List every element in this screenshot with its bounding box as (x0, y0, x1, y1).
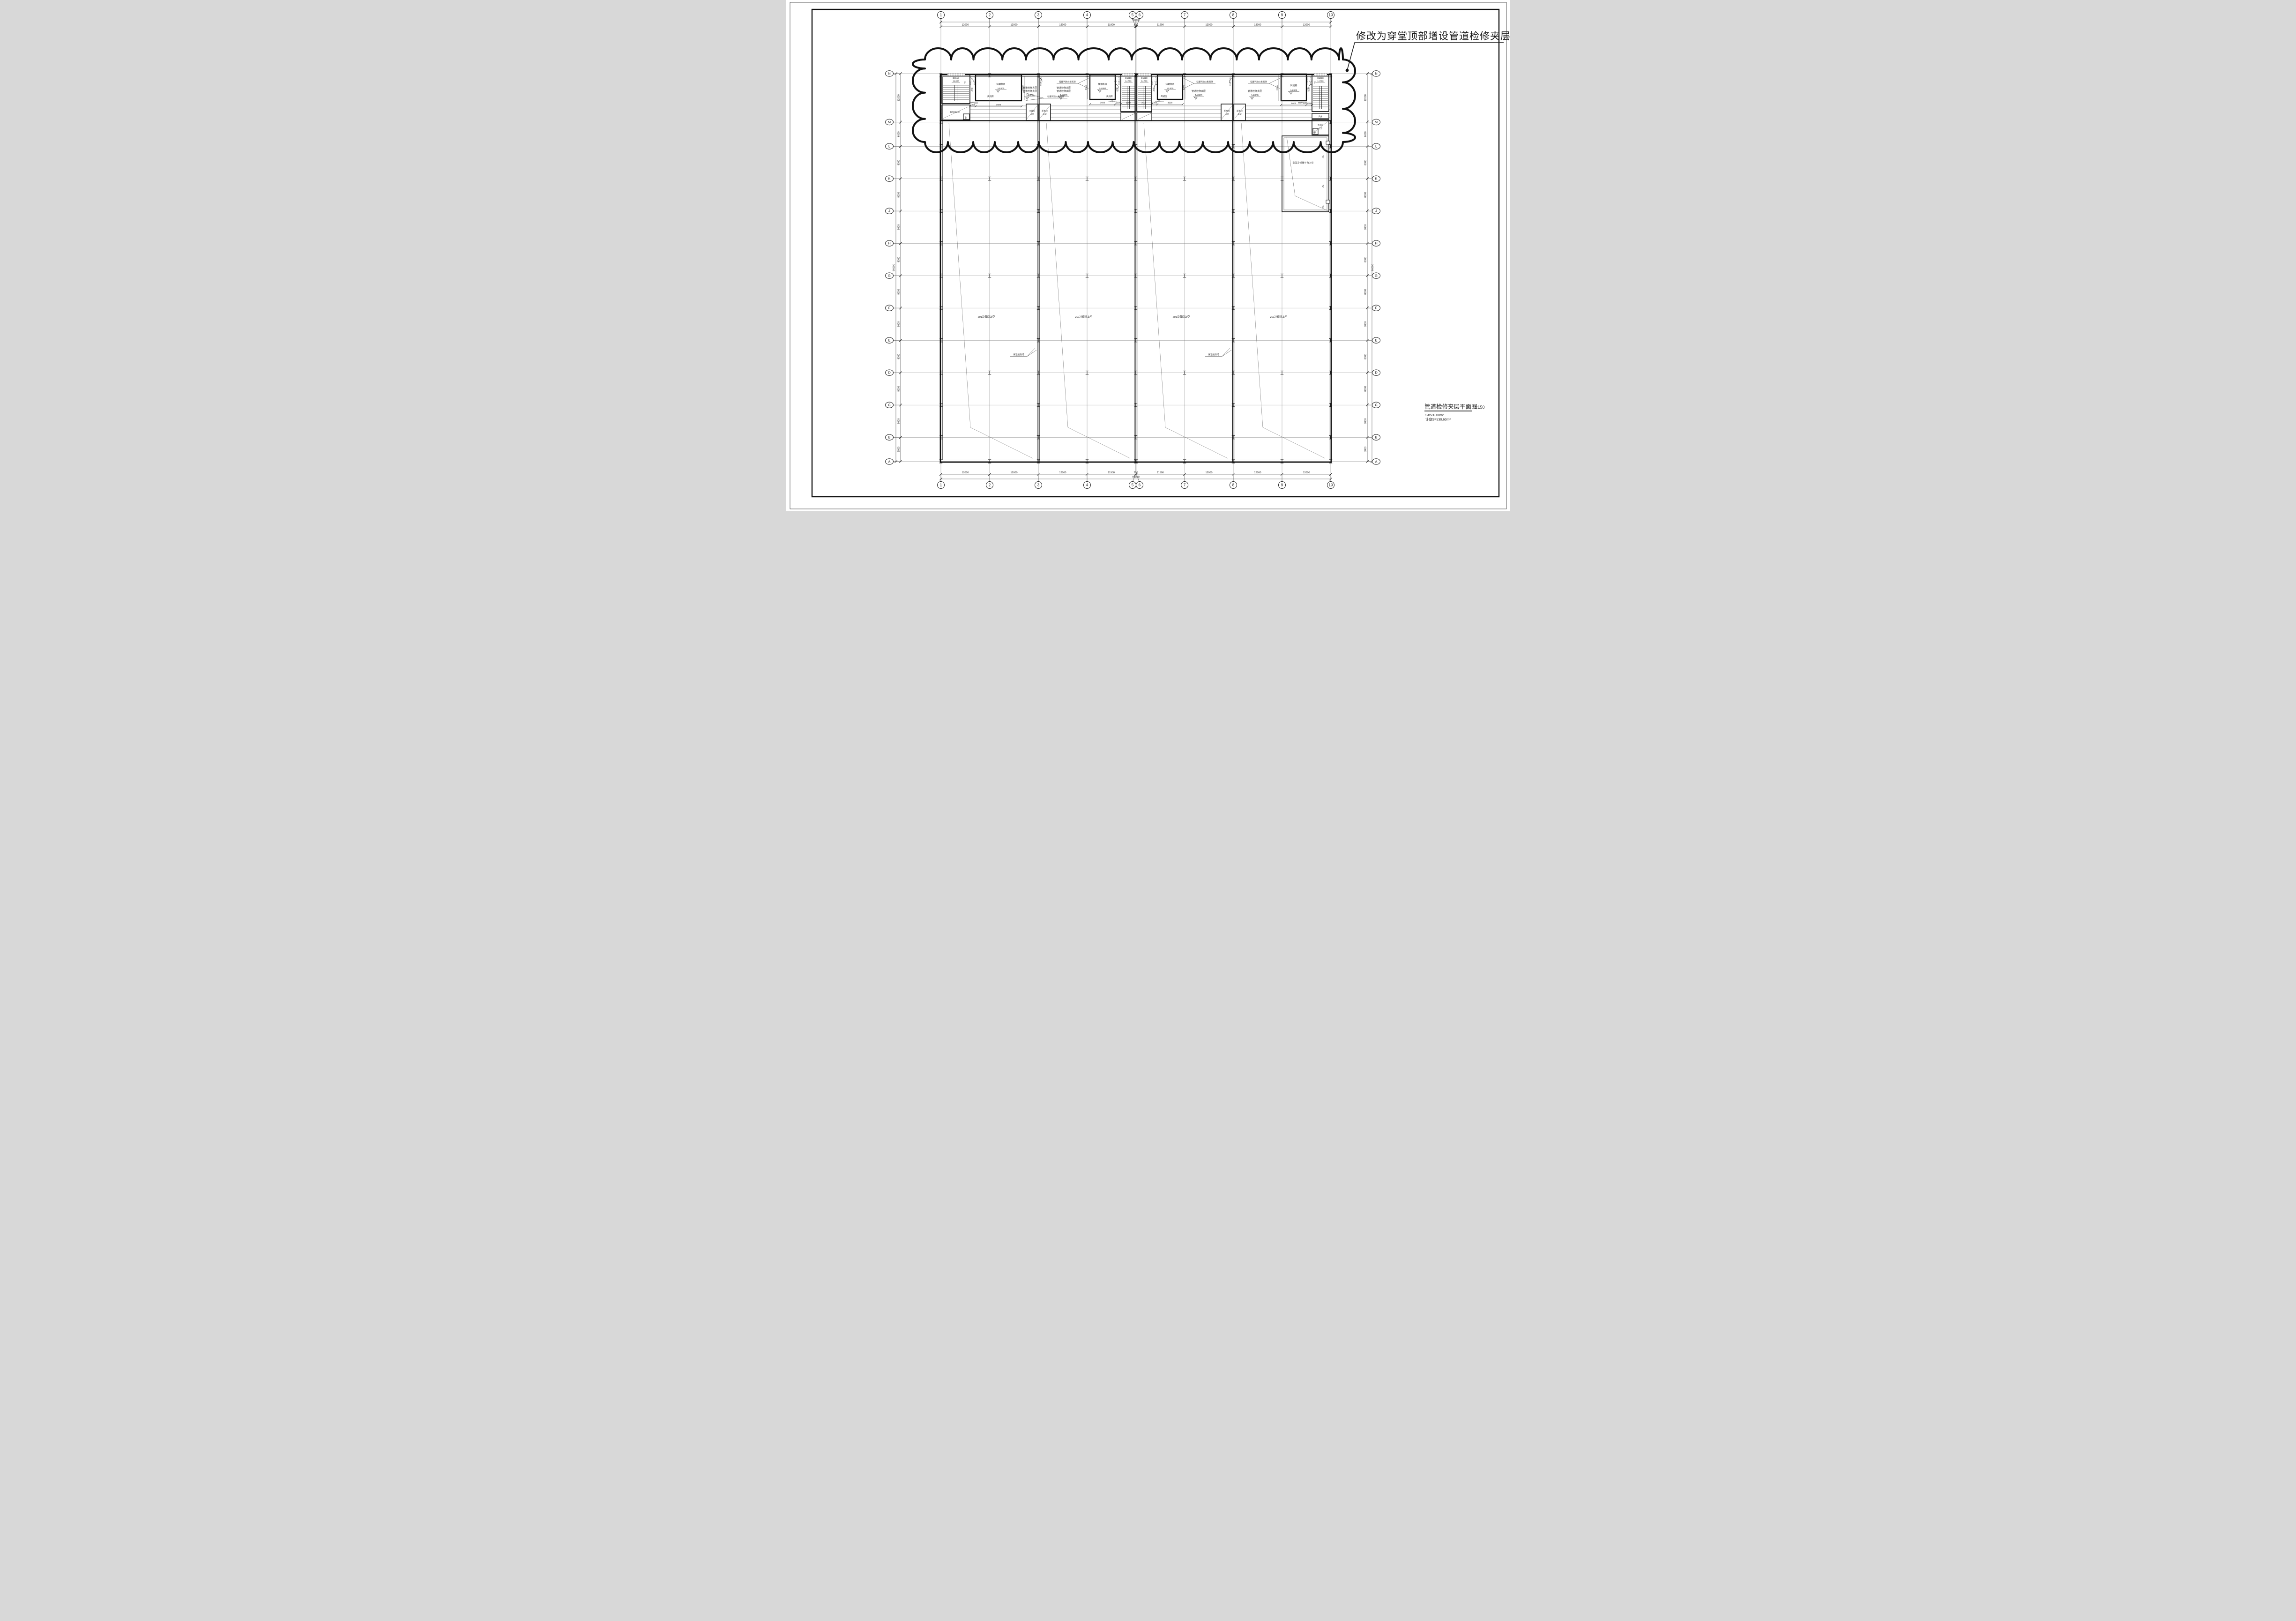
mezzanine-label: 管道检修夹层 (1056, 90, 1070, 93)
dim-span-right: 8000 (1364, 160, 1367, 165)
fire-board-note: 硅酸钙防火板到顶 (1196, 80, 1213, 83)
room-label: 上空 (1225, 112, 1229, 115)
fire-door-b-label: FM乙1121 (1309, 76, 1312, 85)
dim-span-right: 8000 (1364, 224, 1367, 230)
dim-span-top: 12000 (1059, 24, 1066, 27)
col-bubble-label: 7 (1183, 483, 1185, 487)
room-label: 上空 (1237, 112, 1241, 115)
col-bubble-label: 10 (1328, 13, 1333, 17)
room-label: 工具间 (1317, 123, 1323, 126)
dim-span-left: 8000 (897, 386, 900, 392)
room-label: 风机房 (1161, 95, 1167, 98)
dim-span-left: 8000 (897, 354, 900, 359)
row-bubble-label: L (888, 144, 890, 149)
area-text: S=530.60m² (1425, 413, 1444, 417)
room-label: 上空 (1318, 127, 1322, 129)
level-mark: 14.800 (1026, 94, 1034, 97)
stair-door-label: D1518 (1317, 77, 1324, 79)
dim-span-right: 6000 (1364, 447, 1367, 452)
col-bubble-label: 5 (1131, 13, 1133, 17)
fire-door-b-label: FM乙1121 (969, 76, 971, 85)
dim-total-left: 96000 (893, 264, 895, 271)
level-mark: 14.800 (1166, 87, 1173, 90)
dim-span-right: 8000 (1364, 321, 1367, 327)
dim: 5000 (1085, 85, 1087, 90)
dim-total-right: 96000 (1372, 264, 1374, 271)
dim-span-bottom: 11900 (1157, 471, 1164, 474)
revision-annotation: 修改为穿堂顶部增设管道检修夹层 (1345, 31, 1510, 72)
cold-storage-label: 201冷藏间上空 (1270, 315, 1287, 319)
dim-span-left: 8000 (897, 224, 900, 230)
stair-level: 14.800 (1317, 80, 1324, 82)
row-bubble-label: M (887, 120, 890, 124)
fire-door-b-label: FM乙1121 (1114, 76, 1117, 85)
cold-storage-label: 201冷藏间上空 (1172, 315, 1190, 319)
room-label: 暖井 (1313, 130, 1316, 134)
dim: 1300 (1152, 102, 1157, 104)
corridor-label: 过道 (1307, 87, 1310, 91)
mezzanine-label: 管道检修夹层 (1191, 90, 1205, 93)
col-bubble-label: 6 (1138, 13, 1141, 17)
mezzanine-label: 管道检修夹层 (1022, 86, 1036, 90)
col-bubble-label: 1 (939, 13, 942, 17)
level-mark: 14.800 (997, 87, 1004, 90)
dim-span-top: 11900 (1157, 24, 1164, 27)
insulation-note: 保温板封闭 (1013, 353, 1024, 356)
dim: 1300 (970, 104, 975, 106)
col-bubble-label: 10 (1328, 483, 1333, 487)
title-block: 管道检修夹层平面图 1:150 S=530.60m² 计容S=530.60m² (1424, 403, 1485, 422)
fire-board-note: 硅酸钙防火板到顶 (1059, 80, 1076, 83)
cold-storage-label: 201冷藏间上空 (977, 315, 995, 319)
row-bubble-label: A (888, 459, 890, 463)
room-label: 工具间 (1029, 109, 1035, 112)
dim-span-left: 6000 (897, 447, 900, 452)
area-plot-text: 计容S=530.60m² (1425, 418, 1451, 422)
dim-span-bottom: 12000 (1205, 471, 1212, 474)
room-label: 排烟机房 (996, 82, 1005, 86)
stair-door-label: D1518 (1141, 77, 1148, 79)
room-label: 配电间 (1237, 109, 1242, 112)
dim-span-left: 8000 (897, 257, 900, 262)
col-bubble-label: 4 (1086, 13, 1088, 17)
platform-label: 蒸发冷设施平台上空 (1292, 161, 1313, 164)
room-label: 风井 (1318, 115, 1322, 118)
cad-floor-plan: 9600012000120001200011900200119001200012… (786, 0, 1510, 511)
dim-span-right: 6000 (1364, 131, 1367, 137)
dim-span-left: 8000 (897, 289, 900, 295)
row-bubble-label: D (888, 371, 890, 375)
col-bubble-label: 1 (939, 483, 942, 487)
drawing-scale: 1:150 (1474, 405, 1485, 410)
level-mark: 14.800 (1290, 89, 1297, 92)
corridor-label: 过道 (1152, 87, 1155, 91)
stair-level: 14.800 (1125, 80, 1132, 82)
fire-door-a-label: FM甲1121 (1039, 77, 1042, 86)
dim: 1300 (1306, 102, 1312, 105)
drawing-sheet: 9600012000120001200011900200119001200012… (786, 0, 1510, 511)
room-label: 排烟机房 (1165, 82, 1174, 86)
dim-span-left: 8000 (897, 192, 900, 198)
slope-label: 2% (1321, 155, 1325, 159)
cold-storage-label: 201冷藏间上空 (1075, 315, 1092, 319)
fire-board-note: 硅酸钙防火板到顶 (1047, 95, 1064, 98)
dim-span-top: 12000 (962, 24, 969, 27)
dim-span-left: 8000 (897, 418, 900, 424)
fire-door-b-label: FM乙1121 (1151, 76, 1153, 85)
dim: 1300 (1115, 102, 1120, 104)
row-bubble-label: N (888, 71, 890, 75)
corridor-label: 过道 (1116, 87, 1119, 91)
row-bubble-label: G (888, 274, 891, 278)
dim-span-right: 8000 (1364, 257, 1367, 262)
dim: 5600 (1291, 102, 1296, 105)
col-bubble-label: 8 (1232, 13, 1234, 17)
room-label: 配电间上空 (950, 111, 959, 113)
dim-span-right: 8000 (1364, 418, 1367, 424)
dim-span-right: 8000 (1364, 289, 1367, 295)
slope-label: 2% (1321, 205, 1325, 209)
row-bubble-label: F (1375, 306, 1377, 310)
dim-span-bottom: 12000 (1059, 471, 1066, 474)
dim: 3600 (1167, 102, 1172, 104)
level-mark: 14.800 (1195, 94, 1202, 97)
revision-leader-line (1347, 43, 1504, 70)
col-bubble-label: 7 (1183, 13, 1185, 17)
room-label: 排烟机房 (1098, 82, 1107, 86)
row-bubble-label: H (1375, 241, 1377, 246)
dim-total-bottom: 96000 (1132, 476, 1140, 479)
dim-span-right: 12000 (1364, 94, 1367, 101)
fire-door-a-label: FM甲1121 (1298, 102, 1307, 104)
col-bubble-label: 3 (1037, 483, 1039, 487)
dim-span-right: 8000 (1364, 386, 1367, 392)
row-bubble-label: C (888, 403, 891, 407)
room-label: 配电间 (1042, 109, 1047, 112)
col-bubble-label: 9 (1281, 13, 1283, 17)
dim: 3600 (996, 104, 1001, 106)
col-bubble-label: 2 (988, 13, 991, 17)
row-bubble-label: J (1375, 209, 1377, 213)
dim-span-top: 12000 (1205, 24, 1212, 27)
revision-leader-dot (1345, 69, 1349, 72)
slope-label: 2% (1321, 185, 1325, 188)
dim-span-left: 12000 (897, 94, 900, 101)
mezzanine-label: 管道检修夹层 (1247, 90, 1261, 93)
dim-span-bottom: 12000 (1254, 471, 1261, 474)
row-bubble-label: N (1375, 71, 1377, 75)
row-bubble-label: B (1375, 435, 1377, 440)
fire-door-b-label: FM乙1121 (1118, 76, 1120, 85)
room-label: 上空 (1043, 112, 1046, 115)
row-bubble-label: A (1375, 459, 1377, 463)
row-bubble-label: M (1374, 120, 1377, 124)
dim-span-bottom: 11900 (1108, 471, 1115, 474)
row-bubble-label: B (888, 435, 890, 440)
stair-level: 14.800 (953, 80, 959, 82)
room-label: 风机房 (1106, 95, 1113, 98)
row-bubble-label: G (1375, 274, 1378, 278)
fire-door-b-label: FM乙1121 (1155, 76, 1157, 85)
row-bubble-label: L (1375, 144, 1377, 149)
insulation-note: 保温板封闭 (1208, 353, 1219, 356)
dim-span-bottom: 12000 (962, 471, 969, 474)
row-bubble-label: H (888, 241, 890, 246)
row-bubble-label: F (888, 306, 890, 310)
room-label: 上空 (1030, 112, 1034, 115)
stair-level: 14.800 (1141, 80, 1148, 82)
room-label: 风机房 (987, 95, 994, 98)
row-bubble-label: K (888, 177, 890, 181)
dim-span-right: 8000 (1364, 354, 1367, 359)
col-bubble-label: 9 (1281, 483, 1283, 487)
room-label: 风机房 (1290, 84, 1297, 87)
col-bubble-label: 4 (1086, 483, 1088, 487)
mezzanine-label: 管道检修夹层 (1056, 86, 1070, 90)
corridor-label: 过道 (970, 87, 974, 91)
drawing-title: 管道检修夹层平面图 (1424, 403, 1477, 410)
level-mark: 14.800 (1099, 87, 1106, 90)
dim-span-left: 6000 (897, 131, 900, 137)
dim-span-left: 8000 (897, 160, 900, 165)
mezzanine-label: 管道检修夹层 (1022, 90, 1036, 93)
row-bubble-label: C (1375, 403, 1378, 407)
stair-door-label: D1518 (953, 77, 959, 79)
dim: 5000 (1182, 85, 1185, 90)
row-bubble-label: K (1375, 177, 1377, 181)
col-bubble-label: 5 (1131, 483, 1133, 487)
dim: 3500 (1141, 102, 1146, 104)
dim: 3600 (1100, 102, 1105, 104)
dim-span-top: 11900 (1108, 24, 1115, 27)
row-bubble-label: D (1375, 371, 1377, 375)
fire-board-note: 硅酸钙防火板到顶 (1250, 80, 1267, 83)
col-bubble-label: 6 (1138, 483, 1141, 487)
col-bubble-label: 3 (1037, 13, 1039, 17)
dim-span-bottom: 12000 (1303, 471, 1310, 474)
dim-span-bottom: 12000 (1010, 471, 1017, 474)
row-bubble-label: E (1375, 338, 1377, 343)
fire-door-b-label: FM乙1121 (973, 76, 975, 85)
stair-door-label: D1518 (1125, 77, 1132, 79)
fire-door-a-label: FM甲1121 (1229, 77, 1231, 86)
dim-span-top: 12000 (1254, 24, 1261, 27)
room-label: 暖井 (964, 115, 967, 119)
level-mark: 14.800 (1251, 94, 1259, 97)
col-bubble-label: 8 (1232, 483, 1234, 487)
row-bubble-label: E (888, 338, 890, 343)
col-bubble-label: 2 (988, 483, 991, 487)
revision-annotation-text: 修改为穿堂顶部增设管道检修夹层 (1356, 31, 1510, 42)
dim-span-bottom: 200 (1133, 471, 1138, 474)
dim-span-top: 12000 (1303, 24, 1310, 27)
room-label: 配电间 (1224, 109, 1230, 112)
dim-span-left: 8000 (897, 321, 900, 327)
fire-door-b-label: FM乙1121 (1305, 76, 1308, 85)
dim: 3500 (1126, 102, 1131, 104)
dim-span-right: 8000 (1364, 192, 1367, 198)
dim-span-top: 12000 (1010, 24, 1017, 27)
row-bubble-label: J (888, 209, 890, 213)
